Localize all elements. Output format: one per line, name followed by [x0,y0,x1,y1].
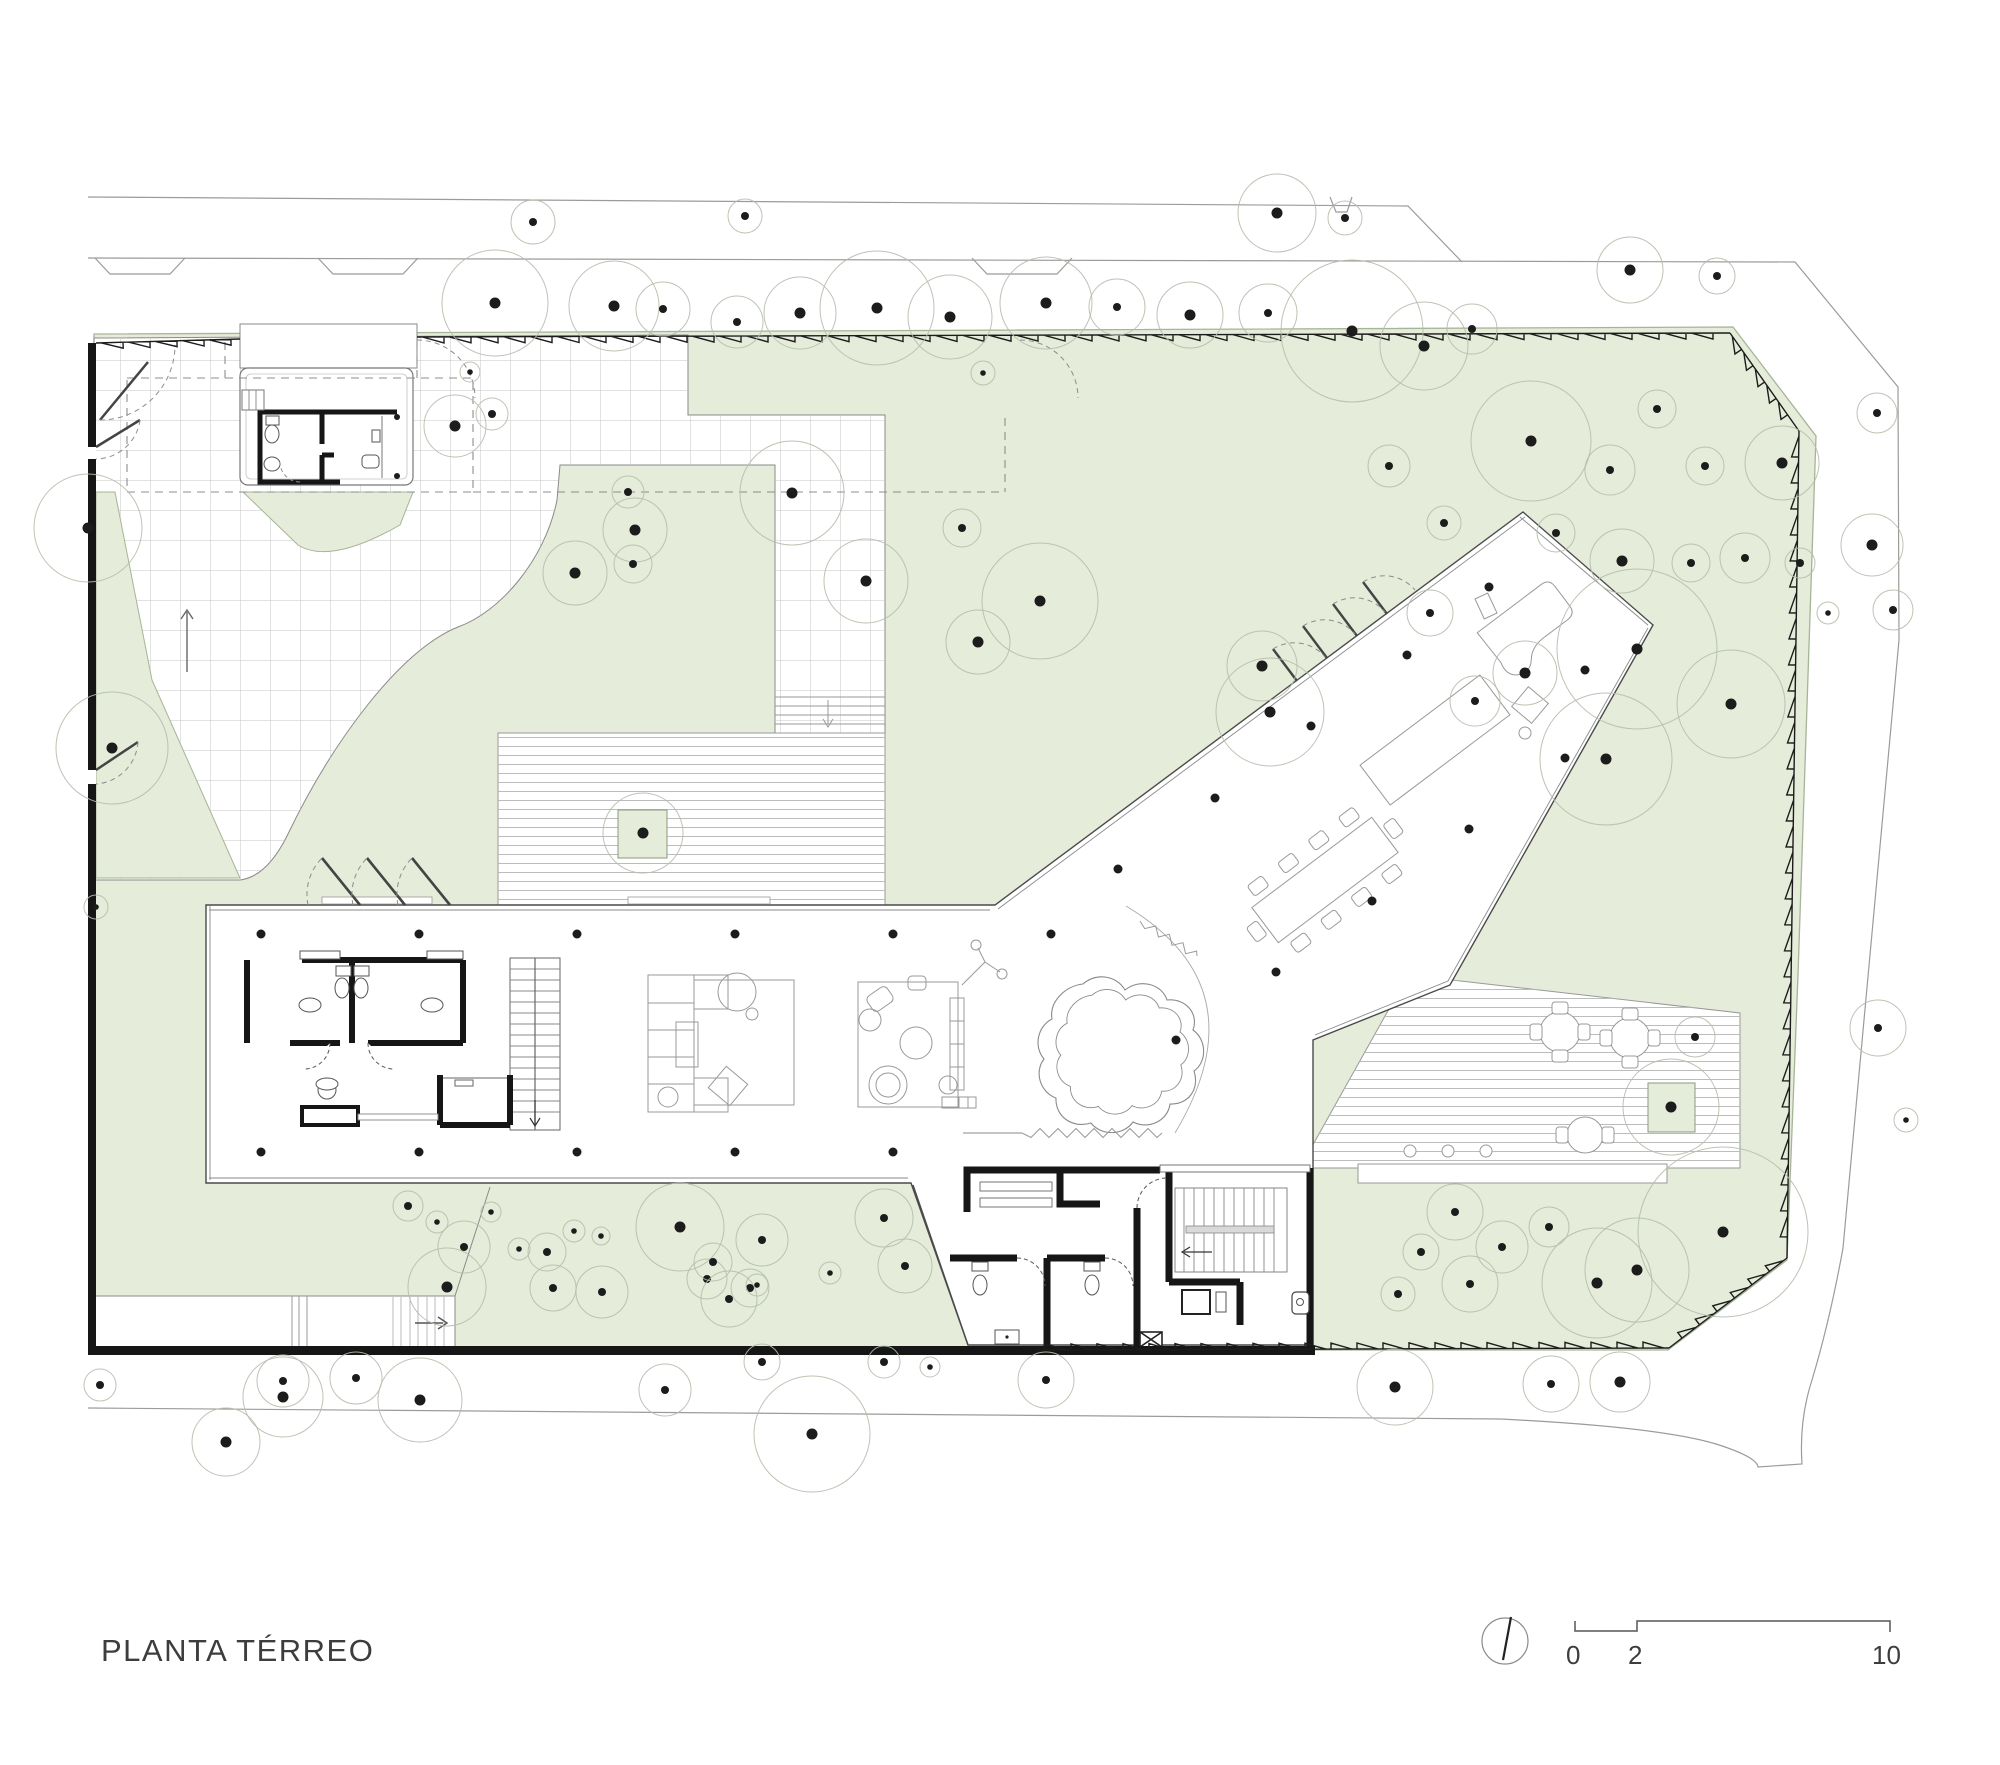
tree-trunk-dot [630,525,641,536]
column-dot [1307,722,1316,731]
tree-trunk-dot [872,303,883,314]
stair-main [510,958,560,1130]
tree-trunk-dot [107,743,118,754]
tree-trunk-dot [1606,466,1614,474]
tree-trunk-dot [1498,1243,1506,1251]
tree-trunk-dot [725,1295,733,1303]
tree-trunk-dot [609,301,620,312]
tree-trunk-dot [434,1219,440,1225]
tree-trunk-dot [460,1243,468,1251]
tree-trunk-dot [83,523,94,534]
tree-trunk-dot [1451,1208,1459,1216]
tree-trunk-dot [1545,1223,1553,1231]
tree-trunk-dot [1873,409,1881,417]
tree-trunk-dot [221,1437,232,1448]
tree-trunk-dot [787,488,798,499]
tree-trunk-dot [758,1358,766,1366]
tree-trunk-dot [1615,1377,1626,1388]
tree-trunk-dot [1666,1102,1677,1113]
tree-trunk-dot [1257,661,1268,672]
column-dot [1211,794,1220,803]
column-dot [889,930,898,939]
tree-trunk-dot [1264,309,1272,317]
tree-trunk-dot [1526,436,1537,447]
tree-trunk-dot [598,1233,604,1239]
floor-plan-canvas [0,0,2000,1765]
tree-trunk-dot [1272,208,1283,219]
tree-trunk-dot [490,298,501,309]
tree-trunk-dot [1625,265,1636,276]
tree-trunk-dot [529,218,537,226]
tree-trunk-dot [516,1246,522,1252]
column-dot [1465,825,1474,834]
tree-trunk-dot [467,369,473,375]
column-dot [1581,666,1590,675]
tree-trunk-dot [1713,272,1721,280]
tree-trunk-dot [450,421,461,432]
column-dot [573,1148,582,1157]
gate-porch [240,324,417,368]
washer-icon [1182,1290,1210,1314]
tree-trunk-dot [624,488,632,496]
tree-trunk-dot [945,312,956,323]
tree-trunk-dot [1265,707,1276,718]
tree-trunk-dot [1796,559,1804,567]
tree-trunk-dot [980,370,986,376]
tree-trunk-dot [488,410,496,418]
column-dot [1114,865,1123,874]
tree-trunk-dot [1035,596,1046,607]
tree-trunk-dot [1718,1227,1729,1238]
tree-trunk-dot [1867,540,1878,551]
tree-trunk-dot [1777,458,1788,469]
tree-trunk-dot [1592,1278,1603,1289]
curb-cut [318,258,418,274]
scale-label-0: 0 [1566,1640,1580,1671]
tree-trunk-dot [1468,325,1476,333]
plan-title: PLANTA TÉRREO [101,1633,374,1669]
tree-trunk-dot [661,1386,669,1394]
tree-trunk-dot [1726,699,1737,710]
tree-trunk-dot [659,305,667,313]
tree-trunk-dot [1419,341,1430,352]
tree-trunk-dot [807,1429,818,1440]
tree-trunk-dot [629,560,637,568]
curb-notch [1330,197,1352,212]
tree-trunk-dot [549,1284,557,1292]
tree-trunk-dot [1042,1376,1050,1384]
tree-trunk-dot [733,318,741,326]
tree-trunk-dot [754,1282,760,1288]
tree-trunk-dot [1632,1265,1643,1276]
tree-trunk-dot [543,1248,551,1256]
column-dot [1172,1036,1181,1045]
tree-trunk-dot [1903,1117,1909,1123]
tree-trunk-dot [1825,610,1831,616]
tree-trunk-dot [1341,214,1349,222]
tree-trunk-dot [1687,559,1695,567]
tree-trunk-dot [638,828,649,839]
column-dot [1485,583,1494,592]
column-dot [394,414,400,420]
floor-plan-page: PLANTA TÉRREO 0 2 10 [0,0,2000,1765]
tree-trunk-dot [973,637,984,648]
tree-trunk-dot [901,1262,909,1270]
tree-trunk-dot [1041,298,1052,309]
curb-cut [95,258,185,274]
scale-label-2: 2 [1628,1640,1642,1671]
tree-trunk-dot [675,1222,686,1233]
column-dot [889,1148,898,1157]
tree-trunk-dot [571,1228,577,1234]
tree-trunk-dot [1552,529,1560,537]
column-dot [394,473,400,479]
column-dot [731,1148,740,1157]
tree-trunk-dot [758,1236,766,1244]
tree-trunk-dot [880,1214,888,1222]
tree-trunk-dot [1701,462,1709,470]
tree-trunk-dot [958,524,966,532]
tree-trunk-dot [415,1395,426,1406]
tree-trunk-dot [278,1392,289,1403]
column-dot [1403,651,1412,660]
tree-trunk-dot [827,1270,833,1276]
tree-trunk-dot [1113,303,1121,311]
column-dot [257,930,266,939]
tree-trunk-dot [1653,405,1661,413]
column-dot [573,930,582,939]
tree-trunk-dot [1347,326,1358,337]
tree-trunk-dot [279,1377,287,1385]
tree-trunk-dot [1390,1382,1401,1393]
tree-trunk-dot [1394,1290,1402,1298]
column-dot [1047,930,1056,939]
tree-trunk-dot [1874,1024,1882,1032]
tree-trunk-dot [1520,668,1531,679]
tree-trunk-dot [1426,609,1434,617]
tree-trunk-dot [927,1364,933,1370]
tree-trunk-dot [96,1381,104,1389]
tree-trunk-dot [1617,556,1628,567]
scale-bar [1575,1621,1890,1632]
column-dot [1561,754,1570,763]
column-dot [1368,897,1377,906]
tree-trunk-dot [1417,1248,1425,1256]
tree-trunk-dot [709,1258,717,1266]
stair-service [1175,1188,1287,1272]
basin-icon [1292,1292,1309,1314]
tree-trunk-dot [442,1282,453,1293]
tree-trunk-dot [404,1202,412,1210]
tree-trunk-dot [795,308,806,319]
tree-trunk-dot [1385,462,1393,470]
tree-trunk-dot [352,1374,360,1382]
column-dot [1272,968,1281,977]
tree-trunk-dot [598,1288,606,1296]
tree-trunk-dot [1471,697,1479,705]
tree-trunk-dot [1466,1280,1474,1288]
tree-trunk-dot [488,1209,494,1215]
deck-upper [498,733,885,905]
tree-trunk-dot [1547,1380,1555,1388]
tree-trunk-dot [1440,519,1448,527]
tree-trunk-dot [861,576,872,587]
deck-bench [1358,1164,1667,1183]
tree-trunk-dot [1632,644,1643,655]
column-dot [731,930,740,939]
tree-trunk-dot [1741,554,1749,562]
scale-label-10: 10 [1872,1640,1901,1671]
tree-trunk-dot [741,212,749,220]
north-arrow-icon [1482,1617,1528,1664]
tree-trunk-dot [570,568,581,579]
column-dot [415,1148,424,1157]
tree-trunk-dot [1691,1033,1699,1041]
tree-trunk-dot [1601,754,1612,765]
column-dot [257,1148,266,1157]
column-dot [415,930,424,939]
tree-trunk-dot [1185,310,1196,321]
tree-trunk-dot [880,1358,888,1366]
tree-trunk-dot [93,904,99,910]
tree-trunk-dot [1889,606,1897,614]
